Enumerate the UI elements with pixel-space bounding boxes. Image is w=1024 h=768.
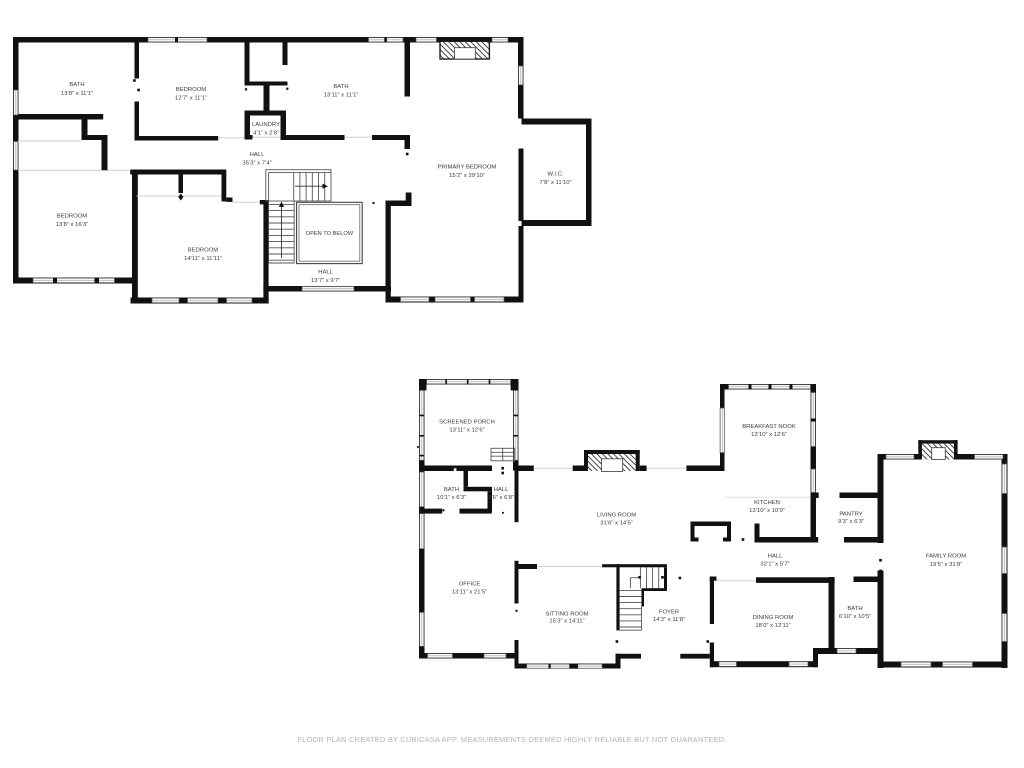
svg-text:13’7” x 9’7”: 13’7” x 9’7” — [311, 278, 340, 284]
svg-text:19’5” x 31’8”: 19’5” x 31’8” — [930, 562, 962, 568]
svg-text:BATH: BATH — [333, 84, 348, 90]
svg-text:13’11” x 11’1”: 13’11” x 11’1” — [324, 93, 359, 99]
svg-text:15’3” x 14’11”: 15’3” x 14’11” — [549, 619, 584, 625]
svg-text:9’3” x 6’3”: 9’3” x 6’3” — [838, 519, 864, 525]
svg-text:SCREENED PORCH: SCREENED PORCH — [439, 420, 495, 426]
svg-text:12’7” x 11’1”: 12’7” x 11’1” — [175, 96, 207, 102]
svg-text:13’11” x 12’6”: 13’11” x 12’6” — [449, 428, 484, 434]
svg-text:PRIMARY BEDROOM: PRIMARY BEDROOM — [438, 165, 497, 171]
svg-text:SITTING ROOM: SITTING ROOM — [545, 612, 588, 618]
svg-text:3’6” x 6’8”: 3’6” x 6’8” — [488, 495, 514, 501]
svg-text:HALL: HALL — [768, 554, 783, 560]
svg-text:32’1” x 5’7”: 32’1” x 5’7” — [760, 562, 789, 568]
svg-text:13’11” x 21’5”: 13’11” x 21’5” — [452, 590, 487, 596]
svg-text:LAUNDRY: LAUNDRY — [252, 122, 280, 128]
svg-text:PANTRY: PANTRY — [839, 512, 862, 518]
svg-text:FOYER: FOYER — [659, 610, 679, 616]
svg-text:BREAKFAST NOOK: BREAKFAST NOOK — [742, 424, 796, 430]
svg-text:BATH: BATH — [69, 82, 84, 88]
svg-text:FAMILY ROOM: FAMILY ROOM — [926, 554, 966, 560]
svg-text:HALL: HALL — [318, 270, 333, 276]
svg-text:OFFICE: OFFICE — [459, 582, 481, 588]
svg-text:6’10” x 10’5”: 6’10” x 10’5” — [839, 614, 871, 620]
svg-text:13’10” x 12’6”: 13’10” x 12’6” — [751, 432, 787, 438]
svg-text:13’10” x 10’9”: 13’10” x 10’9” — [749, 508, 785, 514]
svg-text:7’8” x 11’10”: 7’8” x 11’10” — [540, 180, 572, 186]
svg-text:14’2” x 11’8”: 14’2” x 11’8” — [653, 617, 685, 623]
svg-text:18’0” x 12’11”: 18’0” x 12’11” — [755, 623, 790, 629]
svg-text:W.I.C.: W.I.C. — [547, 172, 563, 178]
svg-text:BATH: BATH — [444, 487, 459, 493]
svg-text:15’2” x 29’10”: 15’2” x 29’10” — [449, 173, 485, 179]
svg-text:BEDROOM: BEDROOM — [188, 248, 219, 254]
svg-text:KITCHEN: KITCHEN — [754, 500, 780, 506]
svg-text:OPEN TO BELOW: OPEN TO BELOW — [306, 231, 354, 237]
svg-text:13’8” x 11’1”: 13’8” x 11’1” — [61, 91, 93, 97]
svg-text:13’8” x 16’3”: 13’8” x 16’3” — [56, 222, 88, 228]
svg-text:DINING ROOM: DINING ROOM — [753, 615, 794, 621]
svg-text:31’6” x 14’5”: 31’6” x 14’5” — [600, 521, 632, 527]
svg-text:10’1” x 6’3”: 10’1” x 6’3” — [437, 495, 466, 501]
svg-text:BATH: BATH — [847, 606, 862, 612]
svg-text:BEDROOM: BEDROOM — [57, 214, 88, 220]
svg-text:HALL: HALL — [494, 487, 509, 493]
svg-text:14’11” x 11’11”: 14’11” x 11’11” — [184, 256, 222, 262]
svg-text:HALL: HALL — [250, 152, 265, 158]
svg-text:35’3” x 7’4”: 35’3” x 7’4” — [242, 161, 271, 167]
svg-text:LIVING ROOM: LIVING ROOM — [597, 513, 636, 519]
svg-text:BEDROOM: BEDROOM — [176, 87, 207, 93]
svg-text:FLOOR PLAN CREATED BY CUBICASA: FLOOR PLAN CREATED BY CUBICASA APP. MEAS… — [297, 735, 726, 744]
svg-text:4’1” x 2’8”: 4’1” x 2’8” — [253, 131, 279, 137]
